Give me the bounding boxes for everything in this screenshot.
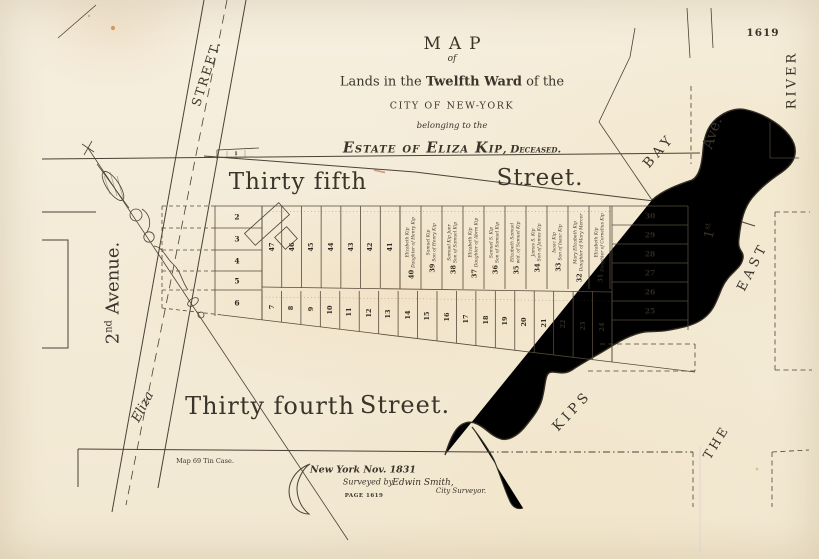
lot-owner-name: James S. KipSon of James Kip bbox=[531, 223, 543, 261]
lot-number: 28 bbox=[645, 249, 655, 258]
map-sheet: MAP of Lands in the Twelfth Ward of the … bbox=[0, 0, 819, 559]
lot-owner-name-line: Son of Henry Kip bbox=[432, 223, 438, 261]
lot-number: 8 bbox=[287, 306, 295, 311]
lot-owner-name: Elizabeth KipDaughter of Cornelius Kip bbox=[594, 213, 606, 271]
lot-number: 2 bbox=[234, 213, 239, 222]
lot-number: 13 bbox=[384, 309, 392, 318]
lot-owner: 33Isaac KipSon of Isaac Kip bbox=[550, 208, 565, 288]
lot-number: 31 bbox=[596, 273, 604, 282]
lot-number: 47 bbox=[268, 242, 276, 251]
lot-number: 45 bbox=[307, 242, 315, 251]
lot-number: 43 bbox=[347, 242, 355, 251]
lot-owner: 37Elizabeth KipDaughter of Abrm Kip bbox=[466, 208, 481, 288]
lot-number: 44 bbox=[327, 242, 335, 251]
lot-number: 25 bbox=[645, 306, 655, 315]
lot-owner-name-line: Isaac Kip bbox=[552, 224, 558, 260]
lot-number: 20 bbox=[520, 318, 528, 327]
lot-owner: 35Elizabeth Samuelwid. of Samuel Kip bbox=[508, 208, 523, 288]
lot-number: 24 bbox=[598, 322, 606, 331]
lot-number: 7 bbox=[268, 305, 276, 310]
lot-number: 40 bbox=[407, 269, 415, 278]
lot-number: 1 bbox=[234, 151, 237, 157]
lot-owner-name-line: Daughter of Henry Kip bbox=[411, 217, 417, 268]
lot-number: 3 bbox=[234, 235, 239, 244]
lot-owner: 38Samuel Kip JunrSon of Samuel Kip bbox=[445, 208, 460, 288]
lot-number: 46 bbox=[288, 242, 296, 251]
lot-owner-name-line: Samuel S. Kip bbox=[489, 221, 495, 262]
lot-number: 12 bbox=[365, 308, 373, 317]
lot-owner-name-line: Daughter of Abrm Kip bbox=[474, 217, 480, 266]
lot-number: 38 bbox=[449, 265, 457, 274]
lot-owner: 31Elizabeth KipDaughter of Cornelius Kip bbox=[592, 208, 607, 288]
lot-number: 30 bbox=[645, 211, 655, 220]
lot-number: 11 bbox=[345, 307, 353, 316]
lot-number: 15 bbox=[423, 312, 431, 321]
lot-owner-name-line: Son of Isaac Kip bbox=[558, 224, 564, 260]
lot-number: 41 bbox=[386, 242, 394, 251]
lot-number: 9 bbox=[307, 307, 315, 312]
lot-owner-name-line: Elizabeth Samuel bbox=[510, 221, 516, 263]
lot-owner-name-line: Mary Elizabeth Kip bbox=[573, 213, 579, 271]
lot-number: 23 bbox=[579, 321, 587, 330]
lot-owner-name: Isaac KipSon of Isaac Kip bbox=[552, 224, 564, 260]
lot-number: 33 bbox=[554, 262, 562, 271]
lot-number: 35 bbox=[512, 265, 520, 274]
lot-number: 16 bbox=[443, 313, 451, 322]
lot-owner-name-line: Son of Samuel Kip bbox=[453, 221, 459, 262]
lot-number: 19 bbox=[501, 316, 509, 325]
lot-number: 6 bbox=[234, 299, 239, 308]
lot-owner-name-line: Elizabeth Kip bbox=[405, 217, 411, 268]
lot-number: 17 bbox=[462, 314, 470, 323]
lot-owner-name: Samuel S. KipSon of Samuel Kip bbox=[489, 221, 501, 262]
lot-owner-name: Samuel KipSon of Henry Kip bbox=[426, 223, 438, 261]
lot-owner-name-line: Son of Samuel Kip bbox=[495, 221, 501, 262]
lot-number: 26 bbox=[645, 287, 655, 296]
lot-owner-name-line: Elizabeth Kip bbox=[594, 213, 600, 271]
lot-number: 32 bbox=[575, 273, 583, 282]
lot-owner-name: Elizabeth KipDaughter of Abrm Kip bbox=[468, 217, 480, 266]
lot-number: 5 bbox=[234, 276, 239, 285]
lot-number: 10 bbox=[326, 306, 334, 315]
lot-number: 27 bbox=[645, 268, 655, 277]
lot-number: 29 bbox=[645, 230, 655, 239]
lot-owner-name-line: Samuel Kip Junr bbox=[447, 221, 453, 262]
lot-number: 34 bbox=[533, 263, 541, 272]
lot-number: 22 bbox=[559, 320, 567, 329]
lot-owner-name-line: Daughter of Mary Mercer bbox=[579, 213, 585, 271]
lot-owner: 36Samuel S. KipSon of Samuel Kip bbox=[487, 208, 502, 288]
lot-owner-name: Samuel Kip JunrSon of Samuel Kip bbox=[447, 221, 459, 262]
lot-owner-name: Mary Elizabeth KipDaughter of Mary Merce… bbox=[573, 213, 585, 271]
lot-owner-name-line: Daughter of Cornelius Kip bbox=[600, 213, 606, 271]
lot-owner-name: Elizabeth Samuelwid. of Samuel Kip bbox=[510, 221, 522, 263]
lot-owner-name-line: James S. Kip bbox=[531, 223, 537, 261]
lot-owner-name: Elizabeth KipDaughter of Henry Kip bbox=[405, 217, 417, 268]
lot-number: 4 bbox=[234, 256, 239, 265]
lot-owner: 39Samuel KipSon of Henry Kip bbox=[424, 208, 439, 288]
lot-number: 39 bbox=[428, 263, 436, 272]
lot-number: 42 bbox=[366, 242, 374, 251]
lot-number: 14 bbox=[404, 311, 412, 320]
lot-number: 18 bbox=[482, 315, 490, 324]
lot-owner-name-line: wid. of Samuel Kip bbox=[516, 221, 522, 263]
lot-owner-name-line: Elizabeth Kip bbox=[468, 217, 474, 266]
lot-owner: 40Elizabeth KipDaughter of Henry Kip bbox=[403, 208, 418, 288]
lot-owner-name-line: Son of James Kip bbox=[537, 223, 543, 261]
lot-owner-name-line: Samuel Kip bbox=[426, 223, 432, 261]
lot-labels-layer: 1234564746454443424178910111213141516171… bbox=[0, 0, 819, 559]
lot-owner: 32Mary Elizabeth KipDaughter of Mary Mer… bbox=[571, 208, 586, 288]
lot-owner: 34James S. KipSon of James Kip bbox=[529, 208, 544, 288]
lot-number: 36 bbox=[491, 265, 499, 274]
lot-number: 37 bbox=[470, 269, 478, 278]
lot-number: 21 bbox=[540, 319, 548, 328]
